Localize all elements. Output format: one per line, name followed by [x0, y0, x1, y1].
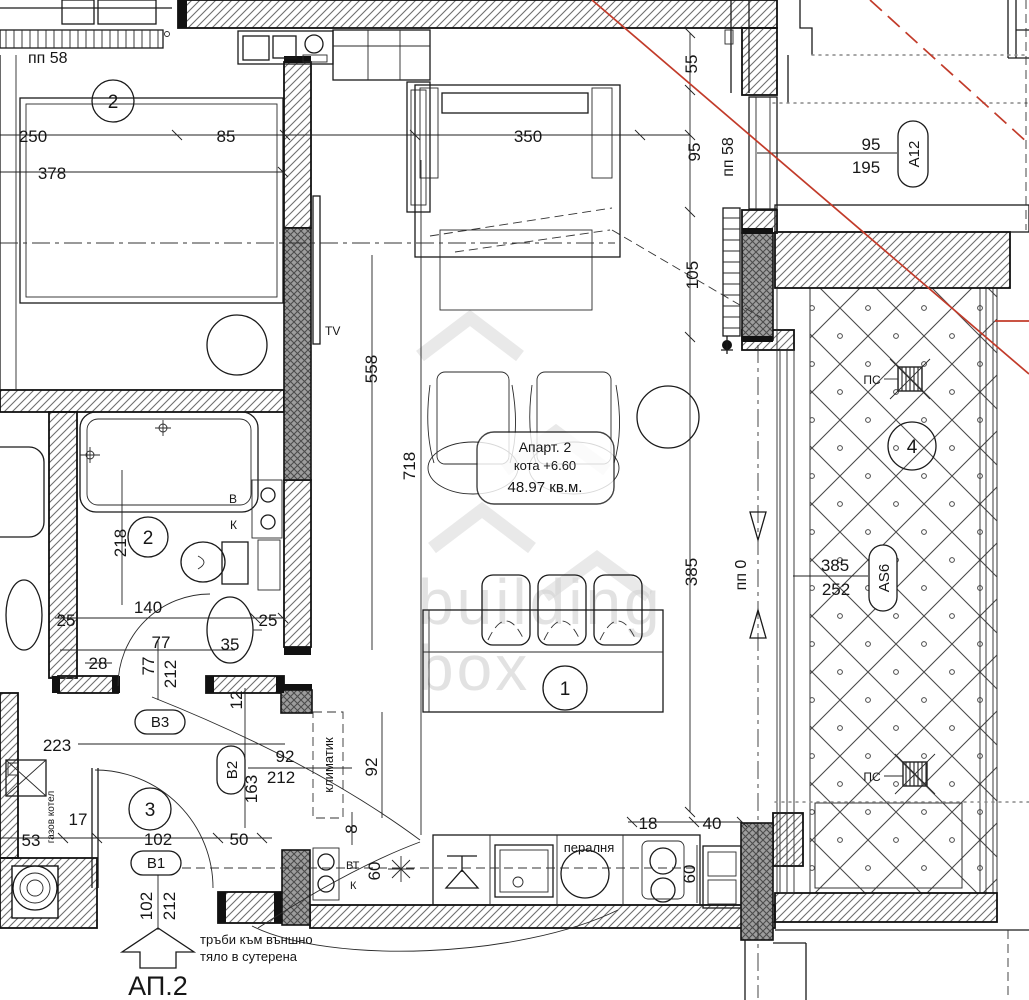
- pp58-right-label: пп 58: [720, 137, 737, 177]
- tag-as6: AS6: [876, 564, 893, 592]
- pipes-note-line1: тръби към външно: [200, 932, 313, 947]
- tag-b3: B3: [151, 714, 169, 731]
- drain-bottom-label: ПС: [863, 770, 881, 784]
- tag-b1: B1: [147, 855, 165, 872]
- apartment-elevation: кота +6.60: [514, 458, 576, 473]
- dim-385-vert: 385: [682, 558, 701, 586]
- washer-label: пералня: [564, 840, 615, 855]
- pipes-note-line2: тяло в сутерена: [200, 949, 298, 964]
- tv-label: TV: [325, 324, 340, 338]
- dim-60-left: 60: [365, 862, 384, 881]
- dim-92-vert: 92: [362, 758, 381, 777]
- watermark-line1: building: [418, 566, 663, 638]
- tag-b2: B2: [224, 761, 241, 779]
- dim-223: 223: [43, 736, 71, 755]
- tag-a12: A12: [906, 141, 923, 168]
- dim-385-terrace: 385: [821, 556, 849, 575]
- dim-50: 50: [230, 830, 249, 849]
- dim-105: 105: [683, 261, 702, 289]
- dim-195: 195: [852, 158, 880, 177]
- dim-92: 92: [276, 747, 295, 766]
- dim-77: 77: [152, 633, 171, 652]
- apartment-name: Апарт. 2: [519, 439, 572, 455]
- k-label: К: [350, 880, 357, 892]
- dim-60-right: 60: [680, 865, 699, 884]
- dim-35: 35: [221, 635, 240, 654]
- pp58-top-label: пп 58: [28, 50, 68, 67]
- dim-95-right: 95: [862, 135, 881, 154]
- room-bedroom-number: 2: [108, 92, 119, 113]
- dim-212-vert: 212: [161, 660, 180, 688]
- dim-53: 53: [22, 831, 41, 850]
- dim-85: 85: [217, 127, 236, 146]
- dim-25-right: 25: [259, 611, 278, 630]
- dim-12: 12: [227, 691, 246, 710]
- entrance-label: АП.2: [128, 971, 188, 1000]
- boiler-label: газов котел: [46, 791, 57, 844]
- dim-77-vert: 77: [139, 657, 158, 676]
- dim-350: 350: [514, 127, 542, 146]
- apartment-area: 48.97 кв.м.: [508, 479, 583, 496]
- wt-label: ВТ: [346, 860, 360, 872]
- room-bathroom-number: 2: [143, 528, 154, 549]
- dim-17: 17: [69, 810, 88, 829]
- dim-140: 140: [134, 598, 162, 617]
- dim-718: 718: [400, 452, 419, 480]
- dim-8: 8: [342, 824, 361, 833]
- dim-218: 218: [111, 529, 130, 557]
- room-living-number: 1: [560, 679, 571, 700]
- dim-40: 40: [703, 814, 722, 833]
- dim-95-vert: 95: [685, 143, 704, 162]
- toilet: [181, 542, 248, 584]
- dim-250: 250: [19, 127, 47, 146]
- dim-558: 558: [362, 355, 381, 383]
- dim-102: 102: [144, 830, 172, 849]
- dim-102-vert: 102: [137, 892, 156, 920]
- sewer-label: К: [230, 518, 237, 532]
- furniture: [0, 30, 741, 968]
- ac-label: климатик: [321, 737, 336, 793]
- room-hall-number: 3: [145, 800, 156, 821]
- drain-top-label: ПС: [863, 373, 881, 387]
- floor-plan-drawing: building box: [0, 0, 1029, 1000]
- watermark-line2: box: [418, 632, 530, 704]
- dim-252: 252: [822, 580, 850, 599]
- dim-378: 378: [38, 164, 66, 183]
- room-terrace-number: 4: [907, 437, 918, 458]
- dim-212-vert2: 212: [160, 892, 179, 920]
- dim-212: 212: [267, 768, 295, 787]
- water-label: В: [229, 492, 237, 506]
- dim-28: 28: [89, 654, 108, 673]
- floor-plan: building box: [0, 0, 1029, 1000]
- dim-18: 18: [639, 814, 658, 833]
- dim-55: 55: [682, 55, 701, 74]
- bed: [415, 85, 620, 310]
- pp0-label: пп 0: [733, 560, 750, 591]
- dim-25-left: 25: [57, 611, 76, 630]
- watermark: building box: [418, 318, 663, 704]
